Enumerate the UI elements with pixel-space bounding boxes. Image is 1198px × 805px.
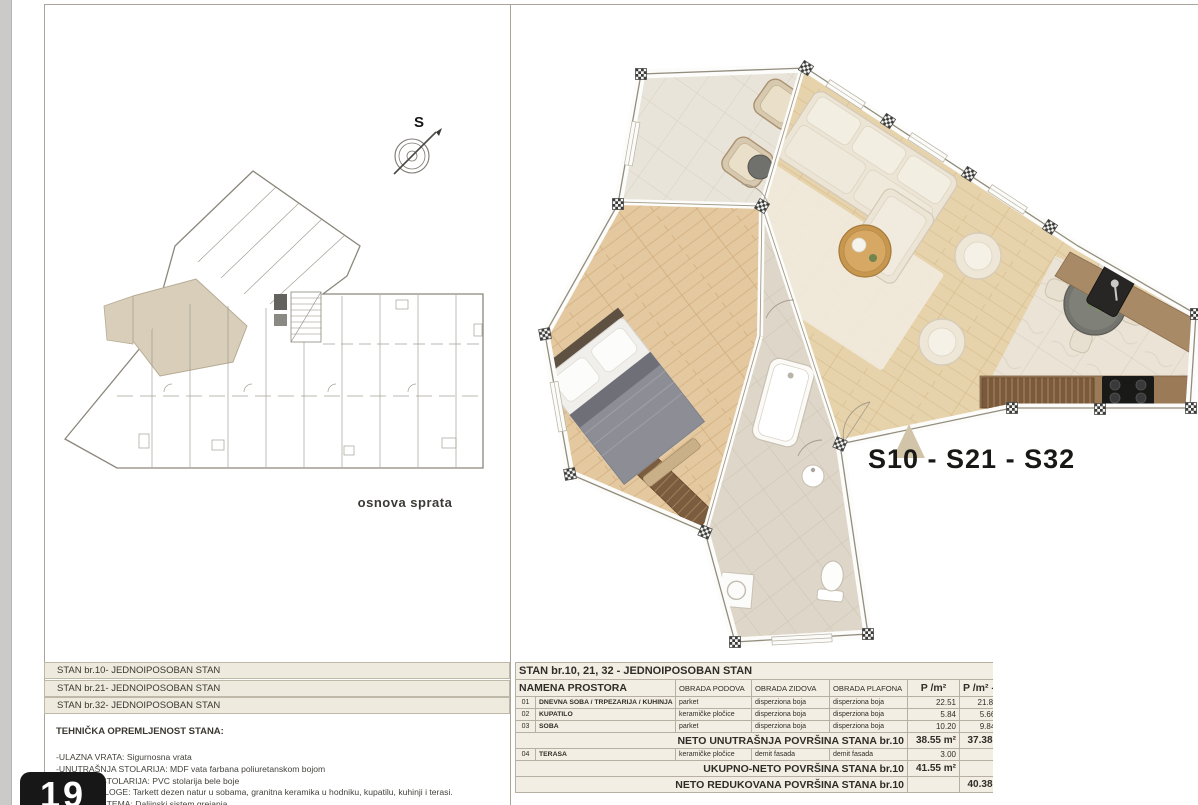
table-cell: disperziona boja [830, 697, 908, 709]
table-cell: parket [676, 721, 752, 733]
table-cell: OBRADA ZIDOVA [752, 680, 830, 697]
table-cell: parket [676, 697, 752, 709]
table-cell: 21.88 [960, 697, 994, 709]
table-cell: disperziona boja [752, 697, 830, 709]
table-cell: UKUPNO-NETO POVRŠINA STANA br.10 [516, 761, 908, 777]
table-cell: keramičke pločice [676, 709, 752, 721]
table-row-total: UKUPNO-NETO POVRŠINA STANA br.1041.55 m² [516, 761, 994, 777]
table-cell [908, 777, 960, 793]
table-row-room: 02KUPATILOkeramičke pločicedisperziona b… [516, 709, 994, 721]
table-row-title: STAN br.10, 21, 32 - JEDNOIPOSOBAN STAN [516, 663, 994, 680]
compass-rose [394, 128, 442, 174]
area-table-wrap: STAN br.10, 21, 32 - JEDNOIPOSOBAN STANN… [515, 662, 993, 805]
table-cell: P /m² - 30% [960, 680, 994, 697]
table-cell: 02 [516, 709, 536, 721]
table-cell: NAMENA PROSTORA [516, 680, 676, 697]
floorplan-caption: osnova sprata [320, 495, 490, 510]
coffee-table [839, 225, 891, 277]
tech-line: -PODNE OBLOGE: Tarkett dezen natur u sob… [56, 787, 453, 797]
apartment-list-row: STAN br.10- JEDNOIPOSOBAN STAN [44, 662, 510, 679]
compass-north-label: S [406, 114, 432, 131]
table-cell: OBRADA PODOVA [676, 680, 752, 697]
table-cell: 04 [516, 749, 536, 761]
table-cell: demit fasada [830, 749, 908, 761]
table-cell: disperziona boja [752, 709, 830, 721]
washbasin [802, 465, 824, 487]
table-cell: disperziona boja [830, 709, 908, 721]
table-cell: 3.00 [908, 749, 960, 761]
table-cell: TERASA [536, 749, 676, 761]
table-cell: P /m² [908, 680, 960, 697]
table-cell: 22.51 [908, 697, 960, 709]
table-row-room: 01DNEVNA SOBA / TRPEZARIJA / KUHINJApark… [516, 697, 994, 709]
table-cell: 01 [516, 697, 536, 709]
tech-heading: TEHNIČKA OPREMLJENOST STANA: [56, 726, 224, 737]
table-cell: 03 [516, 721, 536, 733]
table-row-total: NETO REDUKOVANA POVRŠINA STANA br.1040.3… [516, 777, 994, 793]
armchair [955, 233, 1001, 279]
building-floorplan-svg [44, 4, 510, 654]
table-row-room: 03SOBAparketdisperziona bojadisperziona … [516, 721, 994, 733]
table-cell: 38.55 m² [908, 733, 960, 749]
table-cell: demit fasada [752, 749, 830, 761]
table-cell: 40.38 m² [960, 777, 994, 793]
table-row-room: 04TERASAkeramičke pločicedemit fasadadem… [516, 749, 994, 761]
table-row-header: NAMENA PROSTORAOBRADA PODOVAOBRADA ZIDOV… [516, 680, 994, 697]
table-cell: keramičke pločice [676, 749, 752, 761]
table-cell: KUPATILO [536, 709, 676, 721]
table-row-total: NETO UNUTRAŠNJA POVRŠINA STANA br.1038.5… [516, 733, 994, 749]
table-cell: 9.84 [960, 721, 994, 733]
table-cell: 37.38 m² [960, 733, 994, 749]
table-cell: SOBA [536, 721, 676, 733]
cooktop [1102, 376, 1154, 406]
table-cell [960, 749, 994, 761]
table-cell: 10.20 [908, 721, 960, 733]
page-number-badge: 19 [20, 772, 106, 805]
table-cell: NETO REDUKOVANA POVRŠINA STANA br.10 [516, 777, 908, 793]
tech-line: -ULAZNA VRATA: Sigurnosna vrata [56, 752, 192, 762]
table-cell: DNEVNA SOBA / TRPEZARIJA / KUHINJA [536, 697, 676, 709]
apartment-list-row: STAN br.21- JEDNOIPOSOBAN STAN [44, 680, 510, 697]
table-cell: STAN br.10, 21, 32 - JEDNOIPOSOBAN STAN [516, 663, 994, 680]
table-cell: NETO UNUTRAŠNJA POVRŠINA STANA br.10 [516, 733, 908, 749]
armchair [919, 319, 965, 365]
area-table: STAN br.10, 21, 32 - JEDNOIPOSOBAN STANN… [515, 662, 993, 793]
table-cell: disperziona boja [830, 721, 908, 733]
apartment-render-svg [510, 4, 1198, 654]
apartment-label: S10 - S21 - S32 [868, 444, 1075, 475]
table-cell: 5.84 [908, 709, 960, 721]
table-cell [960, 761, 994, 777]
page-edge-strip [0, 0, 12, 805]
table-cell: 5.66 [960, 709, 994, 721]
table-cell: disperziona boja [752, 721, 830, 733]
apartment-list-row: STAN br.32- JEDNOIPOSOBAN STAN [44, 697, 510, 714]
table-cell: OBRADA PLAFONA [830, 680, 908, 697]
table-cell: 41.55 m² [908, 761, 960, 777]
brochure-page: S osnova sprata [0, 0, 1198, 805]
